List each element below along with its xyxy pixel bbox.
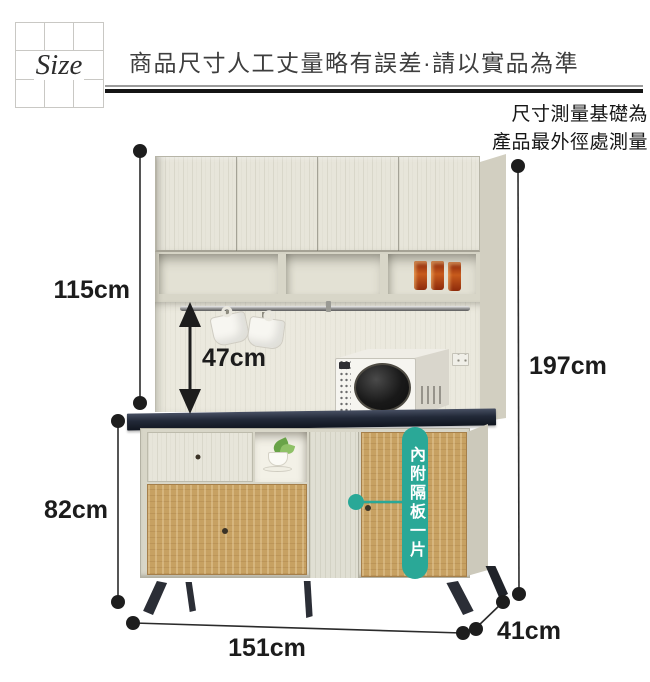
dim-197cm: 197cm <box>529 352 607 381</box>
dim-82cm: 82cm <box>38 496 108 525</box>
knob-oak-drawer <box>222 528 228 534</box>
dimension-dots <box>111 144 526 640</box>
shelf-board-callout: 內附隔板一片 <box>402 427 428 579</box>
product-size-diagram: Size 商品尺寸人工丈量略有誤差·請以實品為準 尺寸測量基礎為 產品最外徑處測… <box>0 0 650 682</box>
dim-47cm: 47cm <box>202 344 266 373</box>
dim-115cm: 115cm <box>38 276 130 305</box>
callout-pointer <box>348 494 404 510</box>
knob-oak-door <box>365 505 371 511</box>
door-knobs <box>196 455 372 535</box>
arrow-47cm <box>179 302 201 414</box>
line-151cm <box>134 623 462 633</box>
knob-white-drawer <box>196 455 201 460</box>
dimension-lines <box>118 152 519 633</box>
line-197cm <box>518 167 519 593</box>
dim-151cm: 151cm <box>222 634 312 663</box>
dimension-overlay <box>0 0 650 682</box>
dim-41cm: 41cm <box>497 617 561 646</box>
